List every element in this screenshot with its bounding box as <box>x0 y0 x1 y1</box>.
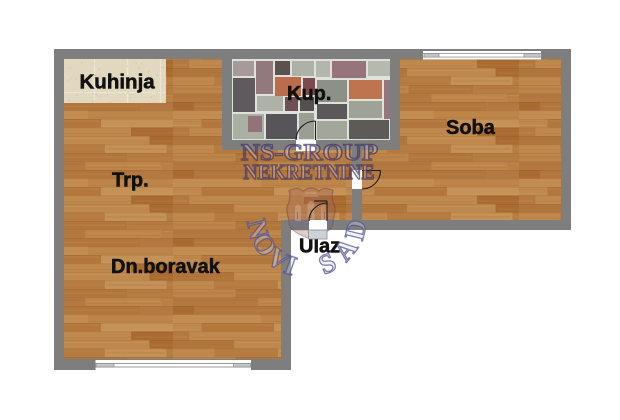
svg-text:NEKRETNINE: NEKRETNINE <box>244 160 375 184</box>
svg-text:Soba: Soba <box>446 117 496 139</box>
svg-text:Kuhinja: Kuhinja <box>80 71 156 94</box>
svg-text:Dn.boravak: Dn.boravak <box>111 256 221 278</box>
svg-text:Kup.: Kup. <box>287 83 331 105</box>
svg-text:Trp.: Trp. <box>112 170 149 192</box>
